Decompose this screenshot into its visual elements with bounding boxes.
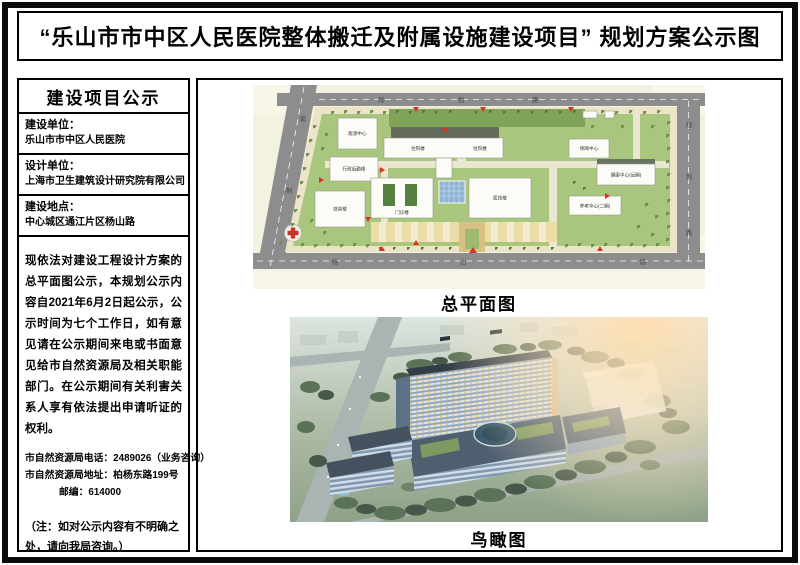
- courtyard: [405, 184, 417, 206]
- svg-text:行政后勤楼: 行政后勤楼: [343, 166, 366, 173]
- aerial-caption: 鸟瞰图: [290, 526, 708, 551]
- field-value: 上海市卫生建筑设计研究院有限公司: [25, 174, 182, 189]
- site-plan-figure: 住院楼 住院楼 门诊楼 医技楼 行政后勤楼 能源中心 感染楼 保障中心 健康中心…: [253, 85, 705, 289]
- svg-text:划: 划: [458, 95, 465, 104]
- helipad: [285, 225, 302, 242]
- field-value: 中心城区通江片区杨山路: [25, 215, 182, 230]
- panel-body: 现依法对建设工程设计方案的总平面图公示，本规划公示内容自2021年6月2日起公示…: [19, 237, 188, 565]
- title-bar: “乐山市市中区人民医院整体搬迁及附属设施建设项目” 规划方案公示图: [17, 11, 783, 61]
- drawings-area: 住院楼 住院楼 门诊楼 医技楼 行政后勤楼 能源中心 感染楼 保障中心 健康中心…: [196, 78, 783, 552]
- contact-zipcode: 邮编：614000: [25, 484, 182, 501]
- site-plan-caption: 总平面图: [253, 290, 705, 315]
- svg-text:杨: 杨: [332, 257, 339, 266]
- glass-atrium: [439, 181, 465, 203]
- svg-text:路: 路: [686, 228, 693, 237]
- field-label: 建设单位：: [25, 117, 182, 133]
- building-connector: [436, 158, 452, 178]
- info-panel: 建设项目公示 建设单位： 乐山市市中区人民医院 设计单位： 上海市卫生建筑设计研…: [17, 78, 190, 552]
- contact-address: 市自然资源局地址：柏杨东路199号: [25, 467, 182, 484]
- svg-text:门诊楼: 门诊楼: [395, 209, 409, 216]
- field-label: 设计单位：: [25, 158, 182, 174]
- svg-text:医技楼: 医技楼: [493, 195, 507, 202]
- svg-text:保障中心: 保障中心: [580, 145, 599, 152]
- field-construction-unit: 建设单位： 乐山市市中区人民医院: [19, 114, 188, 155]
- contact-phone: 市自然资源局电话：2489026（业务咨询）: [25, 450, 182, 467]
- svg-text:住院楼: 住院楼: [411, 145, 425, 152]
- svg-text:规: 规: [378, 95, 385, 104]
- svg-text:住院楼: 住院楼: [473, 145, 487, 152]
- field-location: 建设地点： 中心城区通江片区杨山路: [19, 196, 188, 237]
- courtyard: [383, 184, 395, 206]
- svg-text:规: 规: [686, 120, 693, 129]
- aerial-view-figure: [290, 317, 708, 522]
- field-value: 乐山市市中区人民医院: [25, 133, 182, 148]
- plan-lawn: [389, 109, 585, 127]
- svg-text:能源中心: 能源中心: [348, 130, 367, 137]
- svg-text:划: 划: [686, 172, 693, 181]
- svg-text:感染楼: 感染楼: [333, 206, 347, 213]
- announcement-poster: “乐山市市中区人民医院整体搬迁及附属设施建设项目” 规划方案公示图 建设项目公示…: [0, 0, 800, 565]
- svg-text:路: 路: [532, 95, 539, 104]
- field-design-unit: 设计单位： 上海市卫生建筑设计研究院有限公司: [19, 155, 188, 196]
- note-text: （注：如对公示内容有不明确之处，请向我局咨询。）: [25, 517, 182, 557]
- svg-text:荆: 荆: [286, 186, 293, 195]
- svg-text:健康中心(远期): 健康中心(远期): [611, 172, 642, 179]
- notice-paragraph: 现依法对建设工程设计方案的总平面图公示，本规划公示内容自2021年6月2日起公示…: [25, 251, 182, 440]
- panel-header: 建设项目公示: [19, 80, 188, 114]
- field-label: 建设地点：: [25, 199, 182, 215]
- aerial-illustration: [290, 317, 708, 522]
- svg-text:养老中心(二期): 养老中心(二期): [580, 203, 611, 210]
- svg-text:路: 路: [640, 257, 647, 266]
- page-title: “乐山市市中区人民医院整体搬迁及附属设施建设项目” 规划方案公示图: [39, 20, 760, 52]
- svg-text:山: 山: [460, 257, 467, 266]
- svg-text:紫: 紫: [300, 115, 307, 123]
